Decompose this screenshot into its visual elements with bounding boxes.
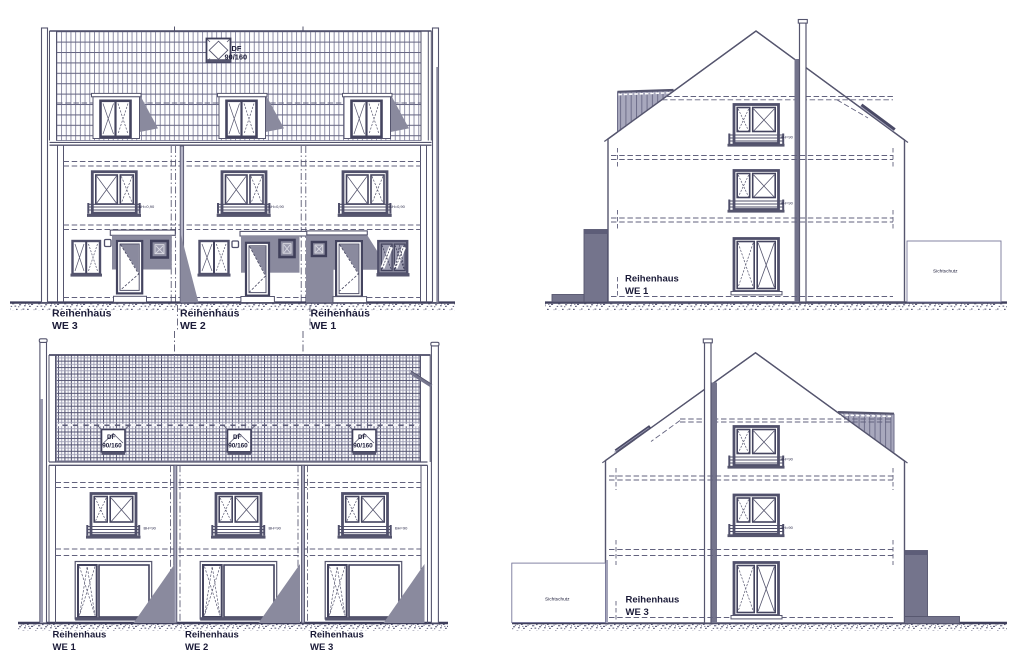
svg-text:WE 1: WE 1 [53,642,77,653]
svg-text:WE 3: WE 3 [626,607,649,618]
svg-text:Reihenhaus: Reihenhaus [311,308,371,320]
svg-text:WE 3: WE 3 [52,320,78,332]
svg-text:90/160: 90/160 [102,443,122,450]
svg-text:90/160: 90/160 [225,53,248,62]
svg-text:DF: DF [358,434,367,441]
svg-text:BH=0,90: BH=0,90 [139,204,155,209]
svg-text:Reihenhaus: Reihenhaus [626,595,680,606]
svg-text:BH=90: BH=90 [144,526,157,531]
svg-text:WE 2: WE 2 [185,642,208,653]
svg-text:BH=90: BH=90 [269,526,282,531]
svg-text:Reihenhaus: Reihenhaus [52,308,112,320]
svg-text:Reihenhaus: Reihenhaus [53,630,107,641]
svg-text:BH=90: BH=90 [395,526,408,531]
svg-text:BH=90: BH=90 [781,201,794,206]
svg-text:DF: DF [233,434,242,441]
svg-text:DF: DF [107,434,116,441]
svg-text:Reihenhaus: Reihenhaus [185,630,239,641]
svg-text:Reihenhaus: Reihenhaus [180,308,240,320]
svg-text:BH=90: BH=90 [781,525,794,530]
svg-text:Sichtschutz: Sichtschutz [545,597,570,603]
svg-text:BH=90: BH=90 [781,457,794,462]
svg-text:90/160: 90/160 [228,443,248,450]
svg-text:Sichtschutz: Sichtschutz [933,269,958,275]
svg-text:WE 1: WE 1 [311,320,337,332]
svg-text:Reihenhaus: Reihenhaus [625,274,679,285]
svg-text:BH=0,90: BH=0,90 [389,204,405,209]
svg-text:BH=90: BH=90 [781,135,794,140]
svg-text:90/160: 90/160 [353,443,373,450]
svg-text:WE 1: WE 1 [625,286,649,297]
svg-text:WE 3: WE 3 [310,642,333,653]
svg-text:BH=0,90: BH=0,90 [268,204,284,209]
svg-text:WE 2: WE 2 [180,320,206,332]
svg-text:Reihenhaus: Reihenhaus [310,630,364,641]
